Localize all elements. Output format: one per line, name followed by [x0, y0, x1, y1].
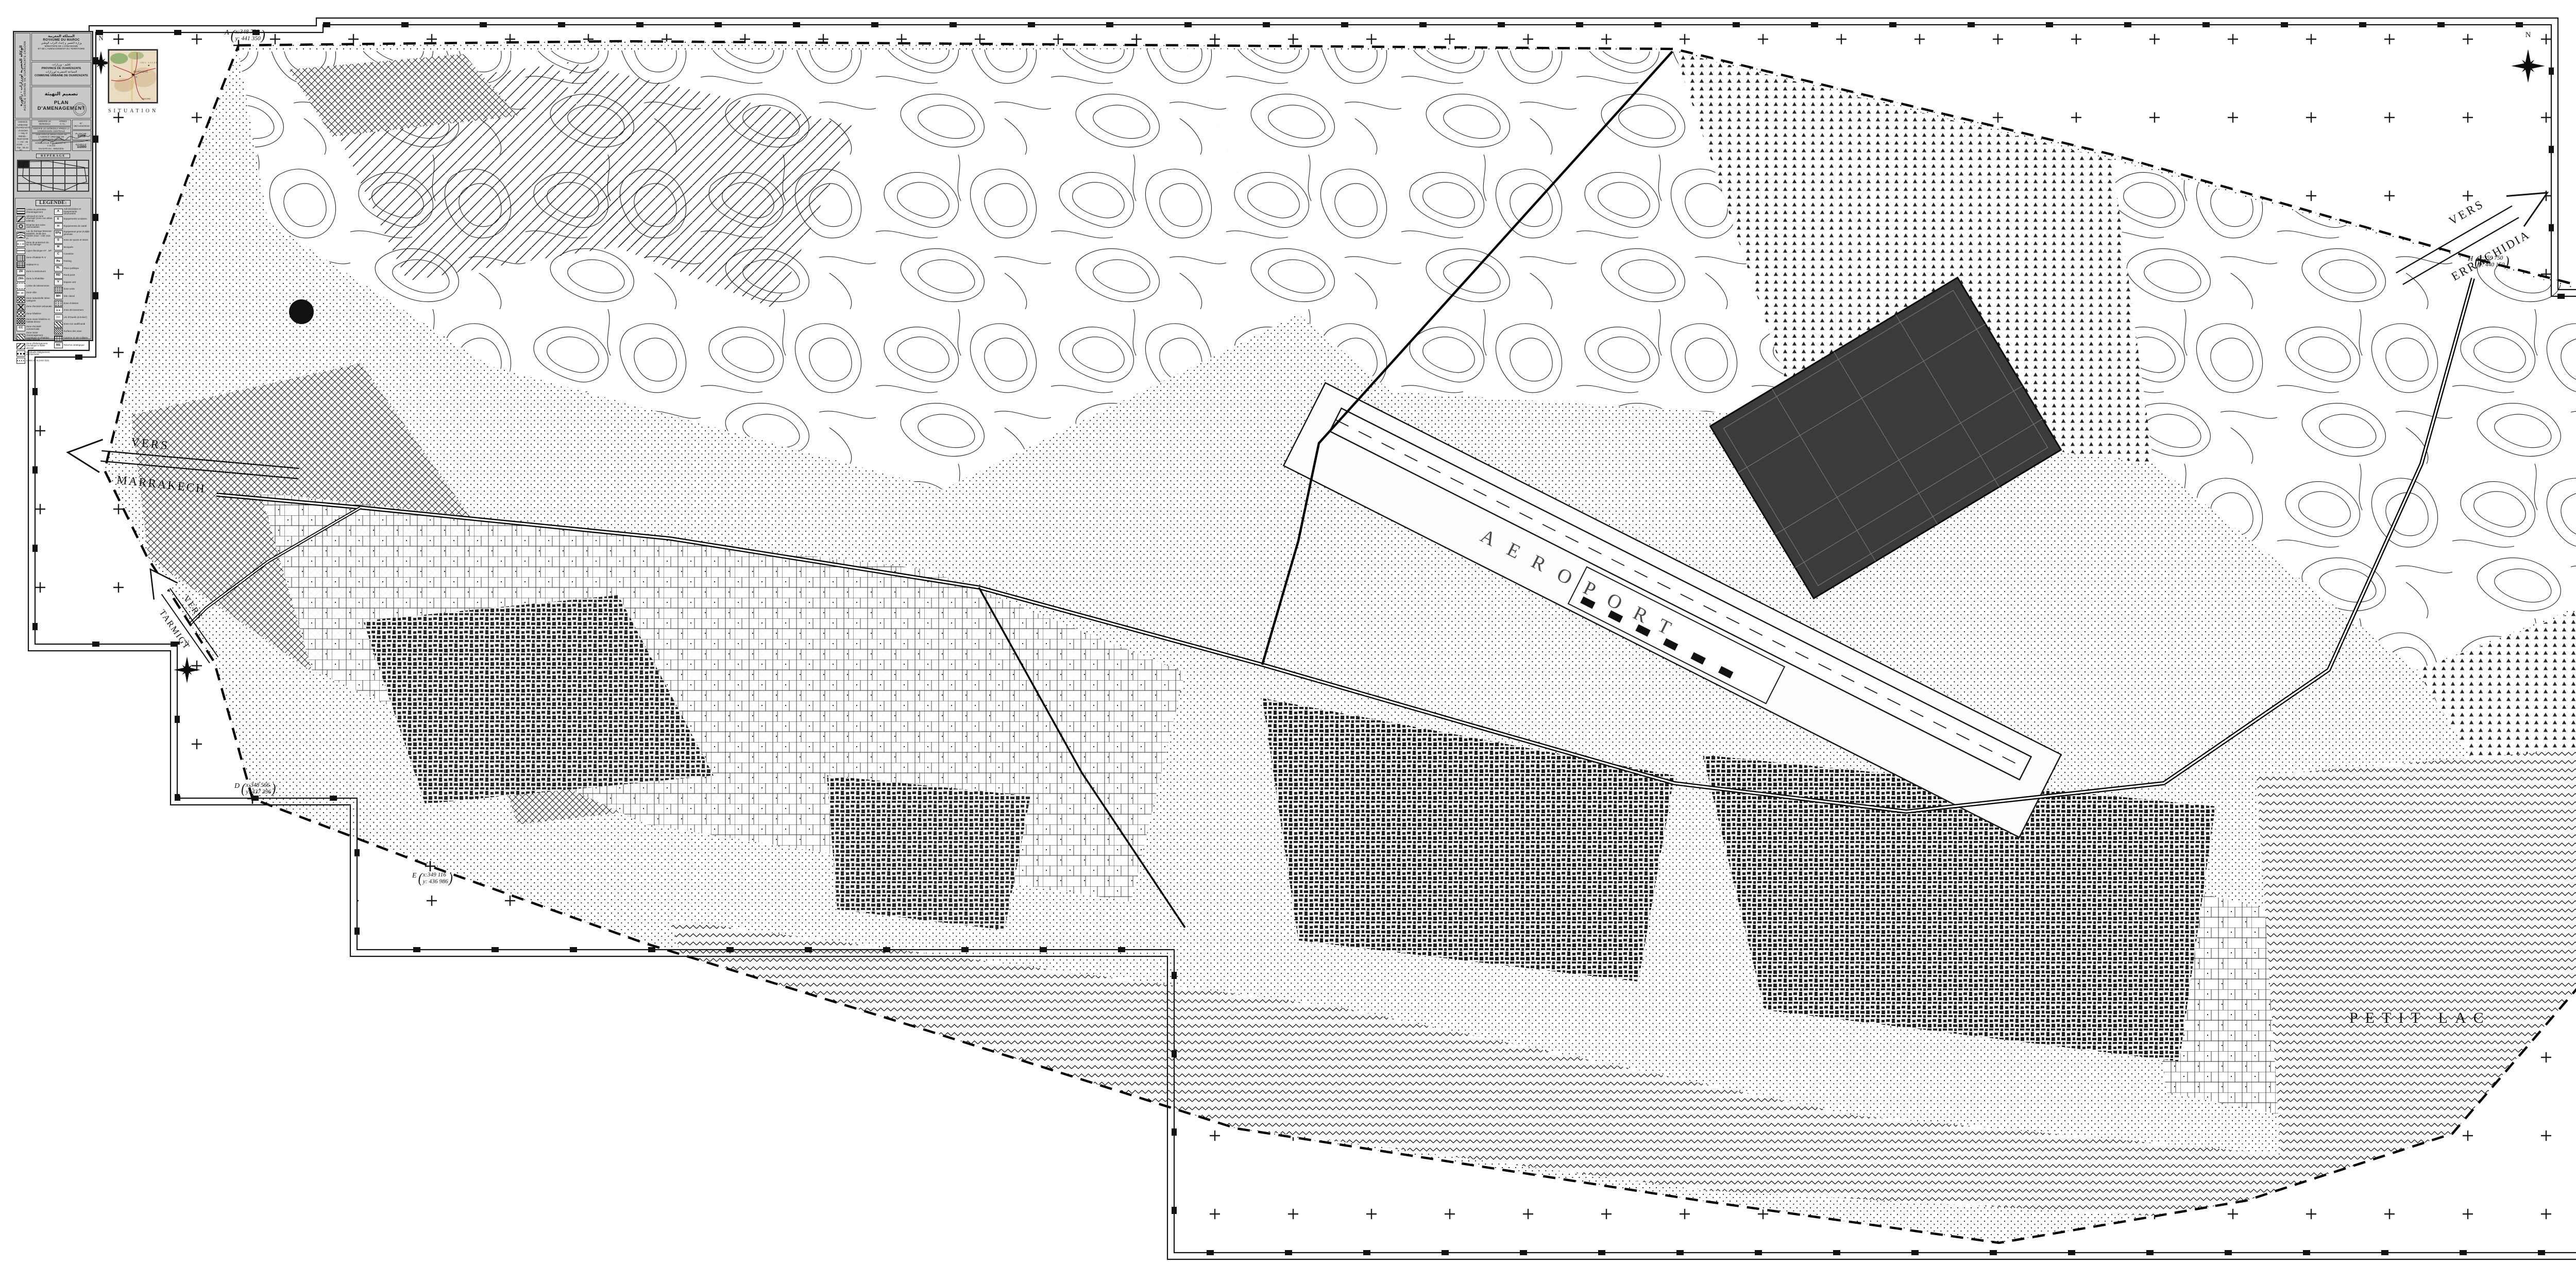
legend-item: Servitude d'alignement architectural	[16, 350, 53, 357]
legend-label: Mosquée	[64, 246, 90, 249]
legend-item: Zone de boisement	[54, 307, 90, 313]
legend-item: Limite de la zone 1111	[16, 358, 53, 364]
legend-label: Zone mixte hôtelière et habitat dense	[26, 318, 53, 323]
legend-label: Lac du barrage Mansour Eddahbi, limite d…	[26, 230, 53, 240]
vers-errachidia-line2: ERRACHIDIA	[2449, 228, 2532, 283]
legend-swatch	[16, 248, 25, 254]
legend-swatch	[54, 300, 63, 307]
situation-map: OUARZAZATE JBEL SAGHRO ZAGORA	[108, 49, 158, 103]
legend-label: Limite du périmètre d'aménagement	[26, 209, 53, 213]
legend-label: Lits d'Oueds (à boiser)	[64, 316, 90, 319]
legend-swatch	[16, 334, 25, 340]
legend-label: Zone à réhabiliter	[26, 278, 53, 280]
title-block-revisions: AGENCE URBAINE OUARZAZATE - ZAGORA — Hay…	[15, 120, 91, 151]
legend-label: Cimetière	[64, 253, 90, 256]
legend-item: Zone mixte d'aménagement touristique et …	[16, 332, 53, 342]
legend-item: Lac du barrage Mansour Eddahbi, limite d…	[16, 230, 53, 240]
legend-label: Zone Industrielle 3ème catégorie	[26, 297, 53, 302]
point-label-A: A( x:348 750y: 441 350 )	[225, 29, 265, 42]
legend-swatch	[16, 290, 25, 296]
legend-column-left: Limite du périmètre d'aménagement Aéropo…	[16, 208, 53, 365]
legend-label: Équipements de santé	[64, 225, 90, 228]
legend-swatch: ZR	[16, 269, 25, 275]
legend-swatch: C	[54, 251, 63, 258]
document-title-cell: تصميم التهيئة PLAN D'AMENAGEMENT	[31, 87, 91, 119]
vers-tarmigt-line1: VERS	[181, 594, 205, 622]
legend-swatch	[54, 307, 63, 313]
reperage-outline	[18, 160, 89, 191]
legend-swatch: PL	[54, 265, 63, 272]
echelle-cell: ECHELLE : 1/2000	[72, 141, 91, 151]
legend-swatch	[54, 314, 63, 321]
legend-title: LEGENDE:	[36, 200, 71, 206]
situation-inset: OUARZAZATE JBEL SAGHRO ZAGORA SITUATION	[108, 49, 158, 114]
legend-item: Limite du périmètre d'aménagement	[16, 208, 53, 214]
legend-item: Zone hôtelière	[16, 311, 53, 317]
revision-row-3: VISE PAR LE DIRECTEUR DE L'AGENCE URBAIN…	[31, 133, 71, 140]
legend-item: Ligne électrique HT . MT	[16, 248, 53, 254]
plan-sheet: AEROPORT PETIT LAC N N	[0, 0, 2576, 1265]
legend-item: RS Réserve stratégique	[54, 342, 90, 348]
homologation-cell: HOMOLOGUE PAR DECRET N° : 2.15.112 EN DA…	[31, 141, 71, 151]
legend-label: Place publique	[64, 267, 90, 270]
legend-item: Zone d'habitat R+3	[16, 255, 53, 261]
legend-swatch: V	[54, 279, 63, 285]
legend-label: Surface des eaux	[64, 330, 90, 333]
legend-item: Zone d'activité artisanale	[16, 304, 53, 310]
legend-swatch: ZRh	[16, 276, 25, 282]
legend-label: Limite de lotissements	[26, 285, 53, 288]
revision-row-2: MODIFIE LE 04/09/2014 APRES LA COMMISSIO…	[31, 127, 71, 133]
legend-label: Aéroport et zone d'accueil (zone non alt…	[26, 215, 53, 223]
legend-label: Zone à restructurer	[26, 271, 53, 273]
legend-section: LEGENDE: Limite du périmètre d'aménageme…	[15, 198, 91, 339]
legend-label: Caserne et site militaire	[64, 337, 90, 340]
situation-city-label: OUARZAZATE	[133, 70, 148, 73]
vers-tarmigt-arrow: VERS TARMIGT	[121, 549, 245, 683]
legend-swatch	[16, 358, 25, 364]
legend-item: Zone mixte hôtelière et habitat dense	[16, 318, 53, 324]
legend-swatch	[16, 311, 25, 317]
legend-item: V Espace vert	[54, 279, 90, 285]
legend-item: PL Place publique	[54, 265, 90, 272]
province-arabic: إقليم : ورزازات	[32, 63, 91, 67]
dossier-number-cell: N° : 08/AUOZ/2015	[72, 120, 91, 130]
legend-label: Administration et équipements structuran…	[64, 208, 90, 215]
legend-column-right: A Administration et équipements structur…	[54, 208, 90, 365]
kingdom-cell: المملكة المغربية ROYAUME DU MAROC وزارة …	[31, 33, 91, 61]
legend-item: Caserne et site militaire	[54, 335, 90, 342]
legend-swatch	[16, 318, 25, 324]
agency-name-arabic: الوكالة الحضرية لورزازات - زاكورة	[19, 35, 23, 117]
zone-urbain-4	[827, 775, 1030, 930]
legend-swatch: EPg	[54, 230, 63, 237]
legend-item: Surface des eaux	[54, 328, 90, 334]
petit-lac-label: PETIT LAC	[2349, 1009, 2491, 1026]
legend-item: E Équipements scolaires	[54, 216, 90, 223]
situation-region-label: JBEL SAGHRO	[140, 62, 158, 64]
legend-swatch: E	[54, 216, 63, 223]
legend-swatch	[16, 283, 25, 289]
legend-item: Zone non aedificandi	[54, 322, 90, 328]
legend-item: CC Zone d'activité commerciale	[16, 325, 53, 331]
legend-swatch: S	[54, 238, 63, 244]
legend-label: Zone d'hébergement touristique à faible …	[26, 343, 53, 350]
legend-swatch	[16, 350, 25, 357]
legend-swatch	[16, 343, 25, 349]
legend-label: Parking	[64, 260, 90, 263]
reperage-title: REPÉRAGE	[36, 154, 70, 158]
vers-marrakech-line1: VERS	[130, 435, 170, 452]
legend-label: Zone de boisement	[64, 309, 90, 312]
title-block: الوكالة الحضرية لورزازات - زاكورة AGENCE…	[13, 31, 93, 341]
legend-swatch	[16, 216, 25, 222]
reperage-section: REPÉRAGE	[15, 153, 91, 196]
point-label-D: D( x:348 566y: 437 396 )	[234, 782, 276, 796]
agency-vertical-strip: الوكالة الحضرية لورزازات - زاكورة AGENCE…	[15, 33, 30, 119]
planche-cell: PLANCHE : 01/06	[72, 130, 91, 141]
legend-swatch	[54, 328, 63, 334]
legend-item: RD Rond point	[54, 273, 90, 279]
legend-item: Emprise des voies carrossables	[16, 223, 53, 229]
legend-swatch: Pa	[54, 258, 63, 264]
legend-item: C Cimetière	[54, 251, 90, 258]
ministry-french-2: ET DE L'AMENAGEMENT DU TERRITOIRE	[32, 47, 91, 50]
legend-label: Limite de la zone 1111	[26, 360, 53, 362]
legend-swatch: H	[54, 223, 63, 229]
legend-label: Zone d'activité artisanale	[26, 306, 53, 308]
vers-marrakech-arrow: VERS MARRAKECH	[57, 433, 314, 500]
legend-item: MH Site classé	[54, 293, 90, 299]
revision-row-1: MODIFIE LE 09/05/2013 APRES C.T.L.	[31, 120, 71, 126]
legend-swatch	[16, 297, 25, 303]
agency-contact-cell: AGENCE URBAINE OUARZAZATE - ZAGORA — Hay…	[15, 120, 30, 151]
legend-label: Équipements scolaires	[64, 218, 90, 221]
legend-swatch	[16, 255, 25, 261]
legend-label: Rond point	[64, 274, 90, 277]
legend-swatch	[54, 322, 63, 328]
province-french: PROVINCE DE OUARZAZATE	[32, 67, 91, 71]
legend-label: Zone d'habitat R+3	[26, 257, 53, 259]
vers-errachidia-line1: VERS	[2447, 197, 2486, 227]
commune-french: COMMUNE URBAINE DE OUARZAZATE	[32, 74, 91, 78]
legend-swatch: A	[54, 209, 63, 215]
legend-item: Zone d'oliviers	[54, 300, 90, 307]
legend-label: Zone mixte d'aménagement touristique et …	[26, 332, 53, 342]
legend-item: Zone Villa	[16, 290, 53, 296]
legend-item: Zone d'hébergement touristique à faible …	[16, 343, 53, 350]
agency-name-french: AGENCE URBAINE DE OUARZAZATE-ZAGORA	[24, 35, 27, 117]
legend-label: Zone d'activité commerciale	[26, 326, 53, 330]
legend-label: Zone non aedificandi	[64, 323, 90, 326]
legend-swatch	[16, 223, 25, 229]
legend-item: Zone de protection du lac du barrage	[16, 241, 53, 247]
situation-city2-label: ZAGORA	[142, 97, 150, 100]
title-block-header: الوكالة الحضرية لورزازات - زاكورة AGENCE…	[15, 33, 91, 119]
legend-label: Équipement privé d'utilité générale	[64, 231, 90, 235]
legend-swatch: MH	[54, 293, 63, 299]
legend-label: Espace vert	[64, 281, 90, 284]
legend-item: Pa Parking	[54, 258, 90, 264]
point-label-E: E( x:349 116y: 436 986 )	[412, 872, 453, 885]
situation-caption: SITUATION	[108, 108, 158, 114]
legend-item: EPg Équipement privé d'utilité générale	[54, 230, 90, 237]
legend-label: Zone Villa	[26, 292, 53, 294]
legend-item: A Administration et équipements structur…	[54, 208, 90, 215]
legend-swatch	[16, 304, 25, 310]
legend-swatch: CC	[16, 325, 25, 331]
legend-label: Emprise des voies carrossables	[26, 224, 53, 229]
doc-title-arabic: تصميم التهيئة	[32, 91, 91, 97]
legend-label: Ligne électrique HT . MT	[26, 250, 53, 252]
legend-item: H Équipements de santé	[54, 223, 90, 229]
legend-item: Aéroport et zone d'accueil (zone non alt…	[16, 215, 53, 223]
svg-text:N: N	[98, 34, 104, 42]
legend-label: Zone d'oliviers	[64, 302, 90, 305]
legend-label: Zone verte	[64, 288, 90, 291]
zone-retenue	[289, 299, 314, 324]
map-canvas: AEROPORT PETIT LAC N N	[0, 0, 2576, 1265]
legend-swatch	[54, 286, 63, 293]
legend-swatch	[16, 262, 25, 268]
legend-item: Zone Industrielle 3ème catégorie	[16, 297, 53, 303]
legend-label: Site classé	[64, 295, 90, 298]
kingdom-arabic: المملكة المغربية	[32, 34, 91, 38]
legend-swatch: M	[54, 244, 63, 250]
province-cell: إقليم : ورزازات PROVINCE DE OUARZAZATE ا…	[31, 62, 91, 86]
legend-item: Habitat R+2	[16, 262, 53, 268]
legend-label: Servitude d'alignement architectural	[26, 351, 53, 356]
vers-marrakech-line2: MARRAKECH	[116, 473, 207, 495]
legend-swatch	[54, 335, 63, 342]
legend-label: Réserve stratégique	[64, 344, 90, 347]
legend-label: Zone hôtelière	[26, 313, 53, 315]
vers-errachidia-arrow: VERS ERRACHIDIA	[2365, 144, 2576, 309]
legend-label: Habitat R+2	[26, 264, 53, 266]
legend-label: Zone de sports et loisirs	[64, 239, 90, 242]
legend-swatch: RS	[54, 342, 63, 348]
legend-item: ZR Zone à restructurer	[16, 269, 53, 275]
legend-swatch	[16, 208, 25, 214]
svg-text:N: N	[2526, 31, 2531, 39]
legend-item: Zone verte	[54, 286, 90, 293]
legend-label: Zone de protection du lac du barrage	[26, 242, 53, 246]
legend-item: M Mosquée	[54, 244, 90, 250]
legend-swatch: RD	[54, 273, 63, 279]
legend-item: Limite de lotissements	[16, 283, 53, 289]
legend-item: ZRh Zone à réhabiliter	[16, 276, 53, 282]
legend-swatch	[16, 241, 25, 247]
map-body: AEROPORT	[77, 21, 2576, 1265]
commune-arabic: الجماعة الحضرية لورزازات	[32, 71, 91, 74]
legend-item: S Zone de sports et loisirs	[54, 238, 90, 244]
kingdom-french: ROYAUME DU MAROC	[32, 38, 91, 42]
legend-item: Lits d'Oueds (à boiser)	[54, 314, 90, 321]
legend-swatch	[16, 232, 25, 238]
